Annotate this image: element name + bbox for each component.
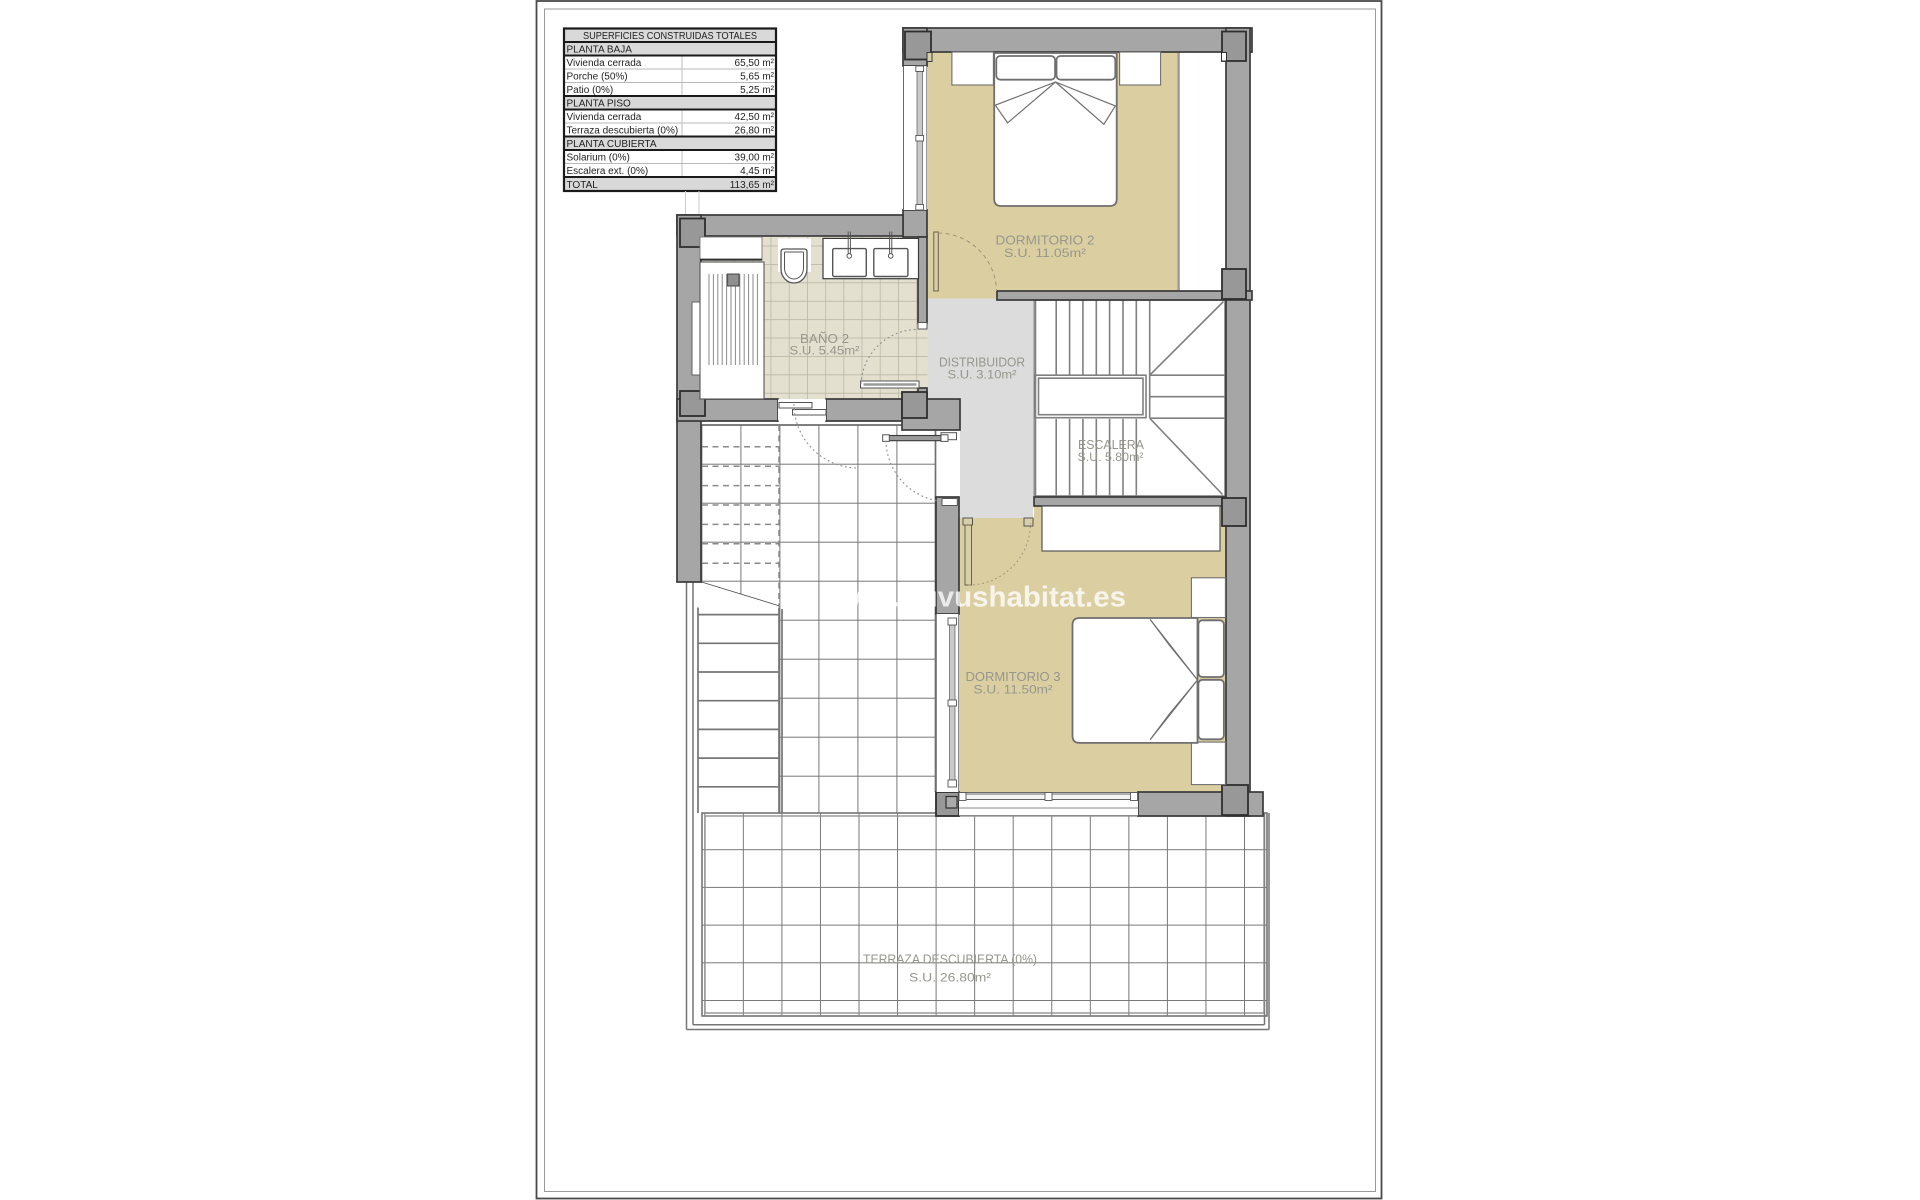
svg-text:PLANTA BAJA: PLANTA BAJA [567, 45, 633, 56]
svg-text:Terraza descubierta (0%): Terraza descubierta (0%) [567, 126, 679, 137]
svg-text:PLANTA CUBIERTA: PLANTA CUBIERTA [567, 139, 657, 150]
svg-text:5,25 m²: 5,25 m² [740, 85, 775, 96]
svg-text:S.U. 5.80m²: S.U. 5.80m² [1078, 450, 1144, 464]
svg-text:39,00 m²: 39,00 m² [735, 153, 775, 164]
svg-text:5,65 m²: 5,65 m² [740, 72, 775, 83]
svg-text:www.nuvushabitat.es: www.nuvushabitat.es [825, 582, 1126, 614]
svg-text:S.U. 26.80m²: S.U. 26.80m² [909, 970, 991, 984]
svg-text:Vivienda cerrada: Vivienda cerrada [567, 112, 642, 123]
svg-text:TOTAL: TOTAL [567, 180, 599, 191]
svg-text:113,65 m²: 113,65 m² [730, 180, 775, 191]
svg-text:SUPERFICIES CONSTRUIDAS TOTALE: SUPERFICIES CONSTRUIDAS TOTALES [583, 31, 757, 42]
svg-text:S.U. 11.50m²: S.U. 11.50m² [974, 682, 1053, 696]
svg-text:Escalera ext. (0%): Escalera ext. (0%) [567, 166, 649, 177]
svg-text:S.U. 3.10m²: S.U. 3.10m² [948, 367, 1017, 381]
svg-text:26,80 m²: 26,80 m² [735, 126, 775, 137]
svg-text:4,45 m²: 4,45 m² [740, 166, 775, 177]
svg-text:PLANTA PISO: PLANTA PISO [567, 99, 632, 110]
svg-text:Patio (0%): Patio (0%) [567, 85, 614, 96]
svg-text:Porche (50%): Porche (50%) [567, 72, 628, 83]
svg-text:S.U. 11.05m²: S.U. 11.05m² [1004, 246, 1086, 260]
svg-text:Vivienda cerrada: Vivienda cerrada [567, 58, 642, 69]
svg-text:65,50 m²: 65,50 m² [735, 58, 775, 69]
svg-text:TERRAZA DESCUBIERTA (0%): TERRAZA DESCUBIERTA (0%) [863, 951, 1037, 966]
svg-text:42,50 m²: 42,50 m² [735, 112, 775, 123]
svg-text:S.U. 5.45m²: S.U. 5.45m² [790, 343, 860, 357]
svg-text:Solarium (0%): Solarium (0%) [567, 153, 630, 164]
